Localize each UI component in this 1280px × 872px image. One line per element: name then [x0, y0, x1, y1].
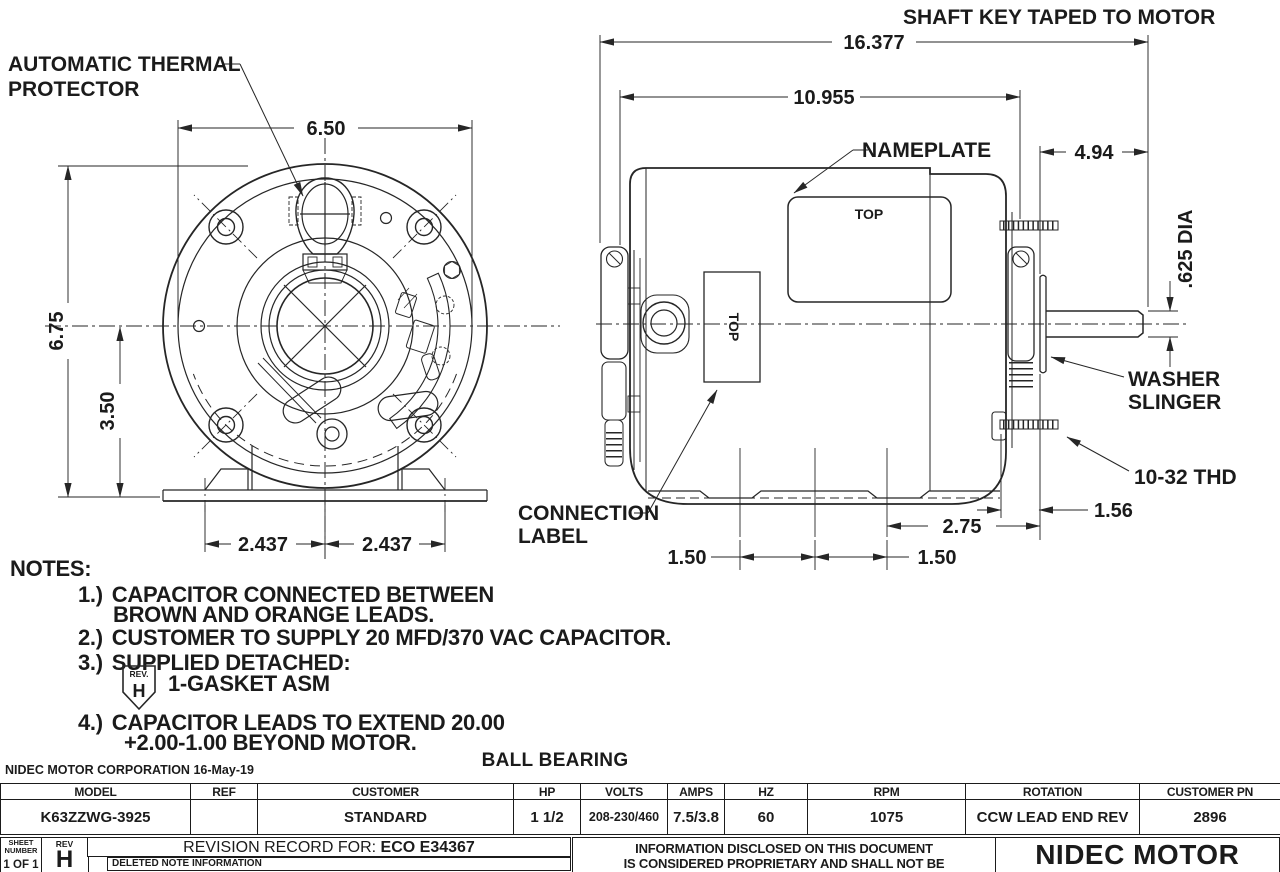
value-rpm: 1075 [808, 800, 966, 835]
vent-hole [381, 213, 392, 224]
note-2-text: CUSTOMER TO SUPPLY 20 MFD/370 VAC CAPACI… [112, 625, 671, 650]
value-ref [191, 800, 258, 835]
callouts: AUTOMATIC THERMAL PROTECTOR SHAFT KEY TA… [8, 6, 1237, 548]
lead-end-bracket [601, 247, 640, 470]
note-3-num: 3.) [78, 650, 103, 676]
shaft-end-bracket [992, 212, 1034, 448]
spec-value-row: K63ZZWG-3925 STANDARD 1 1/2 208-230/460 … [1, 800, 1280, 835]
col-hz: HZ [725, 784, 808, 800]
revision-record-label: REVISION RECORD FOR: [183, 839, 376, 856]
corporation-line: NIDEC MOTOR CORPORATION 16-May-19 [5, 763, 254, 777]
value-rotation: CCW LEAD END REV [966, 800, 1140, 835]
nameplate-label: NAMEPLATE [862, 139, 991, 162]
company-name: NIDEC MOTOR [995, 837, 1280, 872]
revision-record-cell: REVISION RECORD FOR: ECO E34367 [87, 837, 571, 857]
dim-foot-to-end: 2.75 [943, 516, 982, 538]
value-model: K63ZZWG-3925 [1, 800, 191, 835]
dimension-labels: 6.50 6.75 3.50 2.437 2.437 16.377 10.955… [46, 32, 1197, 569]
dim-shaft-extension: 4.94 [1075, 142, 1115, 164]
value-amps: 7.5/3.8 [668, 800, 725, 835]
front-view [45, 138, 560, 562]
revision-flag: REV. H [120, 664, 158, 712]
thread-spec-label: 10-32 THD [1134, 466, 1237, 489]
note-1-num: 1.) [78, 582, 103, 608]
thermal-protector-label2: PROTECTOR [8, 78, 139, 101]
washer-slinger-label: WASHER [1128, 368, 1220, 391]
sheet-number-cell: SHEETNUMBER 1 OF 1 [0, 837, 42, 872]
rev-cell: REV H [41, 837, 89, 872]
spec-header-row: MODEL REF CUSTOMER HP VOLTS AMPS HZ RPM … [1, 784, 1280, 800]
leader-lines [222, 64, 1129, 513]
note-4-cont: +2.00-1.00 BEYOND MOTOR. [124, 730, 417, 756]
revision-flag-letter: H [133, 681, 146, 701]
col-volts: VOLTS [581, 784, 668, 800]
washer-slinger-label2: SLINGER [1128, 391, 1221, 414]
base-bolt-centerlines [740, 448, 887, 537]
col-hp: HP [514, 784, 581, 800]
thermal-protector-label: AUTOMATIC THERMAL [8, 53, 241, 76]
proprietary-line1: INFORMATION DISCLOSED ON THIS DOCUMENT [573, 841, 995, 856]
dim-body-length: 10.955 [793, 87, 854, 109]
side-view [596, 168, 1190, 537]
connection-label-text2: LABEL [518, 525, 588, 548]
corporation-name: NIDEC MOTOR CORPORATION [5, 763, 190, 777]
value-customer-pn: 2896 [1140, 800, 1280, 835]
motor-body-outline [630, 168, 1006, 504]
dim-foot-left: 2.437 [238, 534, 288, 556]
dim-shaft-dia: .625 DIA [1175, 210, 1197, 289]
col-rpm: RPM [808, 784, 966, 800]
bearing-type: BALL BEARING [455, 750, 655, 772]
col-amps: AMPS [668, 784, 725, 800]
connection-label-text: CONNECTION [518, 502, 659, 525]
note-4-num: 4.) [78, 710, 103, 736]
bottom-strip: SHEETNUMBER 1 OF 1 REV H REVISION RECORD… [0, 837, 1280, 872]
rev-value: H [42, 849, 88, 871]
col-customer: CUSTOMER [258, 784, 514, 800]
note-2-num: 2.) [78, 625, 103, 651]
dim-front-height: 6.75 [46, 312, 68, 351]
nameplate-top-marking: TOP [855, 206, 884, 222]
col-rotation: ROTATION [966, 784, 1140, 800]
dim-overall-length: 16.377 [843, 32, 904, 54]
value-hp: 1 1/2 [514, 800, 581, 835]
dim-centerline-height: 3.50 [97, 392, 119, 431]
proprietary-line2: IS CONSIDERED PROPRIETARY AND SHALL NOT … [573, 856, 995, 871]
spec-table: MODEL REF CUSTOMER HP VOLTS AMPS HZ RPM … [0, 783, 1280, 835]
col-model: MODEL [1, 784, 191, 800]
col-ref: REF [191, 784, 258, 800]
revision-flag-label: REV. [129, 669, 148, 679]
dim-stud-length: 1.56 [1094, 500, 1133, 522]
dim-foot-right: 2.437 [362, 534, 412, 556]
dim-front-width: 6.50 [307, 118, 346, 140]
proprietary-notice: INFORMATION DISCLOSED ON THIS DOCUMENT I… [572, 837, 996, 872]
ground-screw [258, 358, 347, 449]
drawing-date: 16-May-19 [193, 763, 253, 777]
dim-bolt-spacing-a: 1.50 [668, 547, 707, 569]
sheet-value: 1 OF 1 [1, 859, 41, 871]
sheet-label: SHEETNUMBER [1, 839, 41, 854]
dim-bolt-spacing-b: 1.50 [918, 547, 957, 569]
deleted-note-row: DELETED NOTE INFORMATION [107, 857, 571, 871]
note-3-detail: 1-GASKET ASM [168, 671, 330, 697]
value-customer: STANDARD [258, 800, 514, 835]
shaft-key-note: SHAFT KEY TAPED TO MOTOR [903, 6, 1215, 29]
engineering-drawing-page: 6.50 6.75 3.50 2.437 2.437 16.377 10.955… [0, 0, 1280, 872]
value-hz: 60 [725, 800, 808, 835]
revision-eco: ECO E34367 [381, 839, 475, 856]
col-customer-pn: CUSTOMER PN [1140, 784, 1280, 800]
value-volts: 208-230/460 [581, 800, 668, 835]
notes-title: NOTES: [10, 556, 91, 582]
note-2: 2.)CUSTOMER TO SUPPLY 20 MFD/370 VAC CAP… [78, 625, 671, 651]
base-flange [648, 491, 1000, 498]
connection-top-marking: TOP [726, 313, 742, 342]
